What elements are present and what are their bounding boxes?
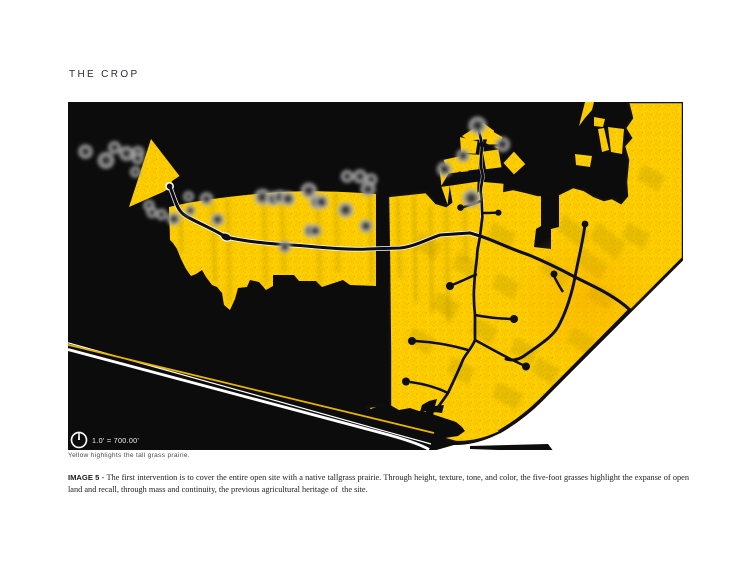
svg-text:1.0' = 700.00': 1.0' = 700.00' bbox=[92, 436, 139, 445]
